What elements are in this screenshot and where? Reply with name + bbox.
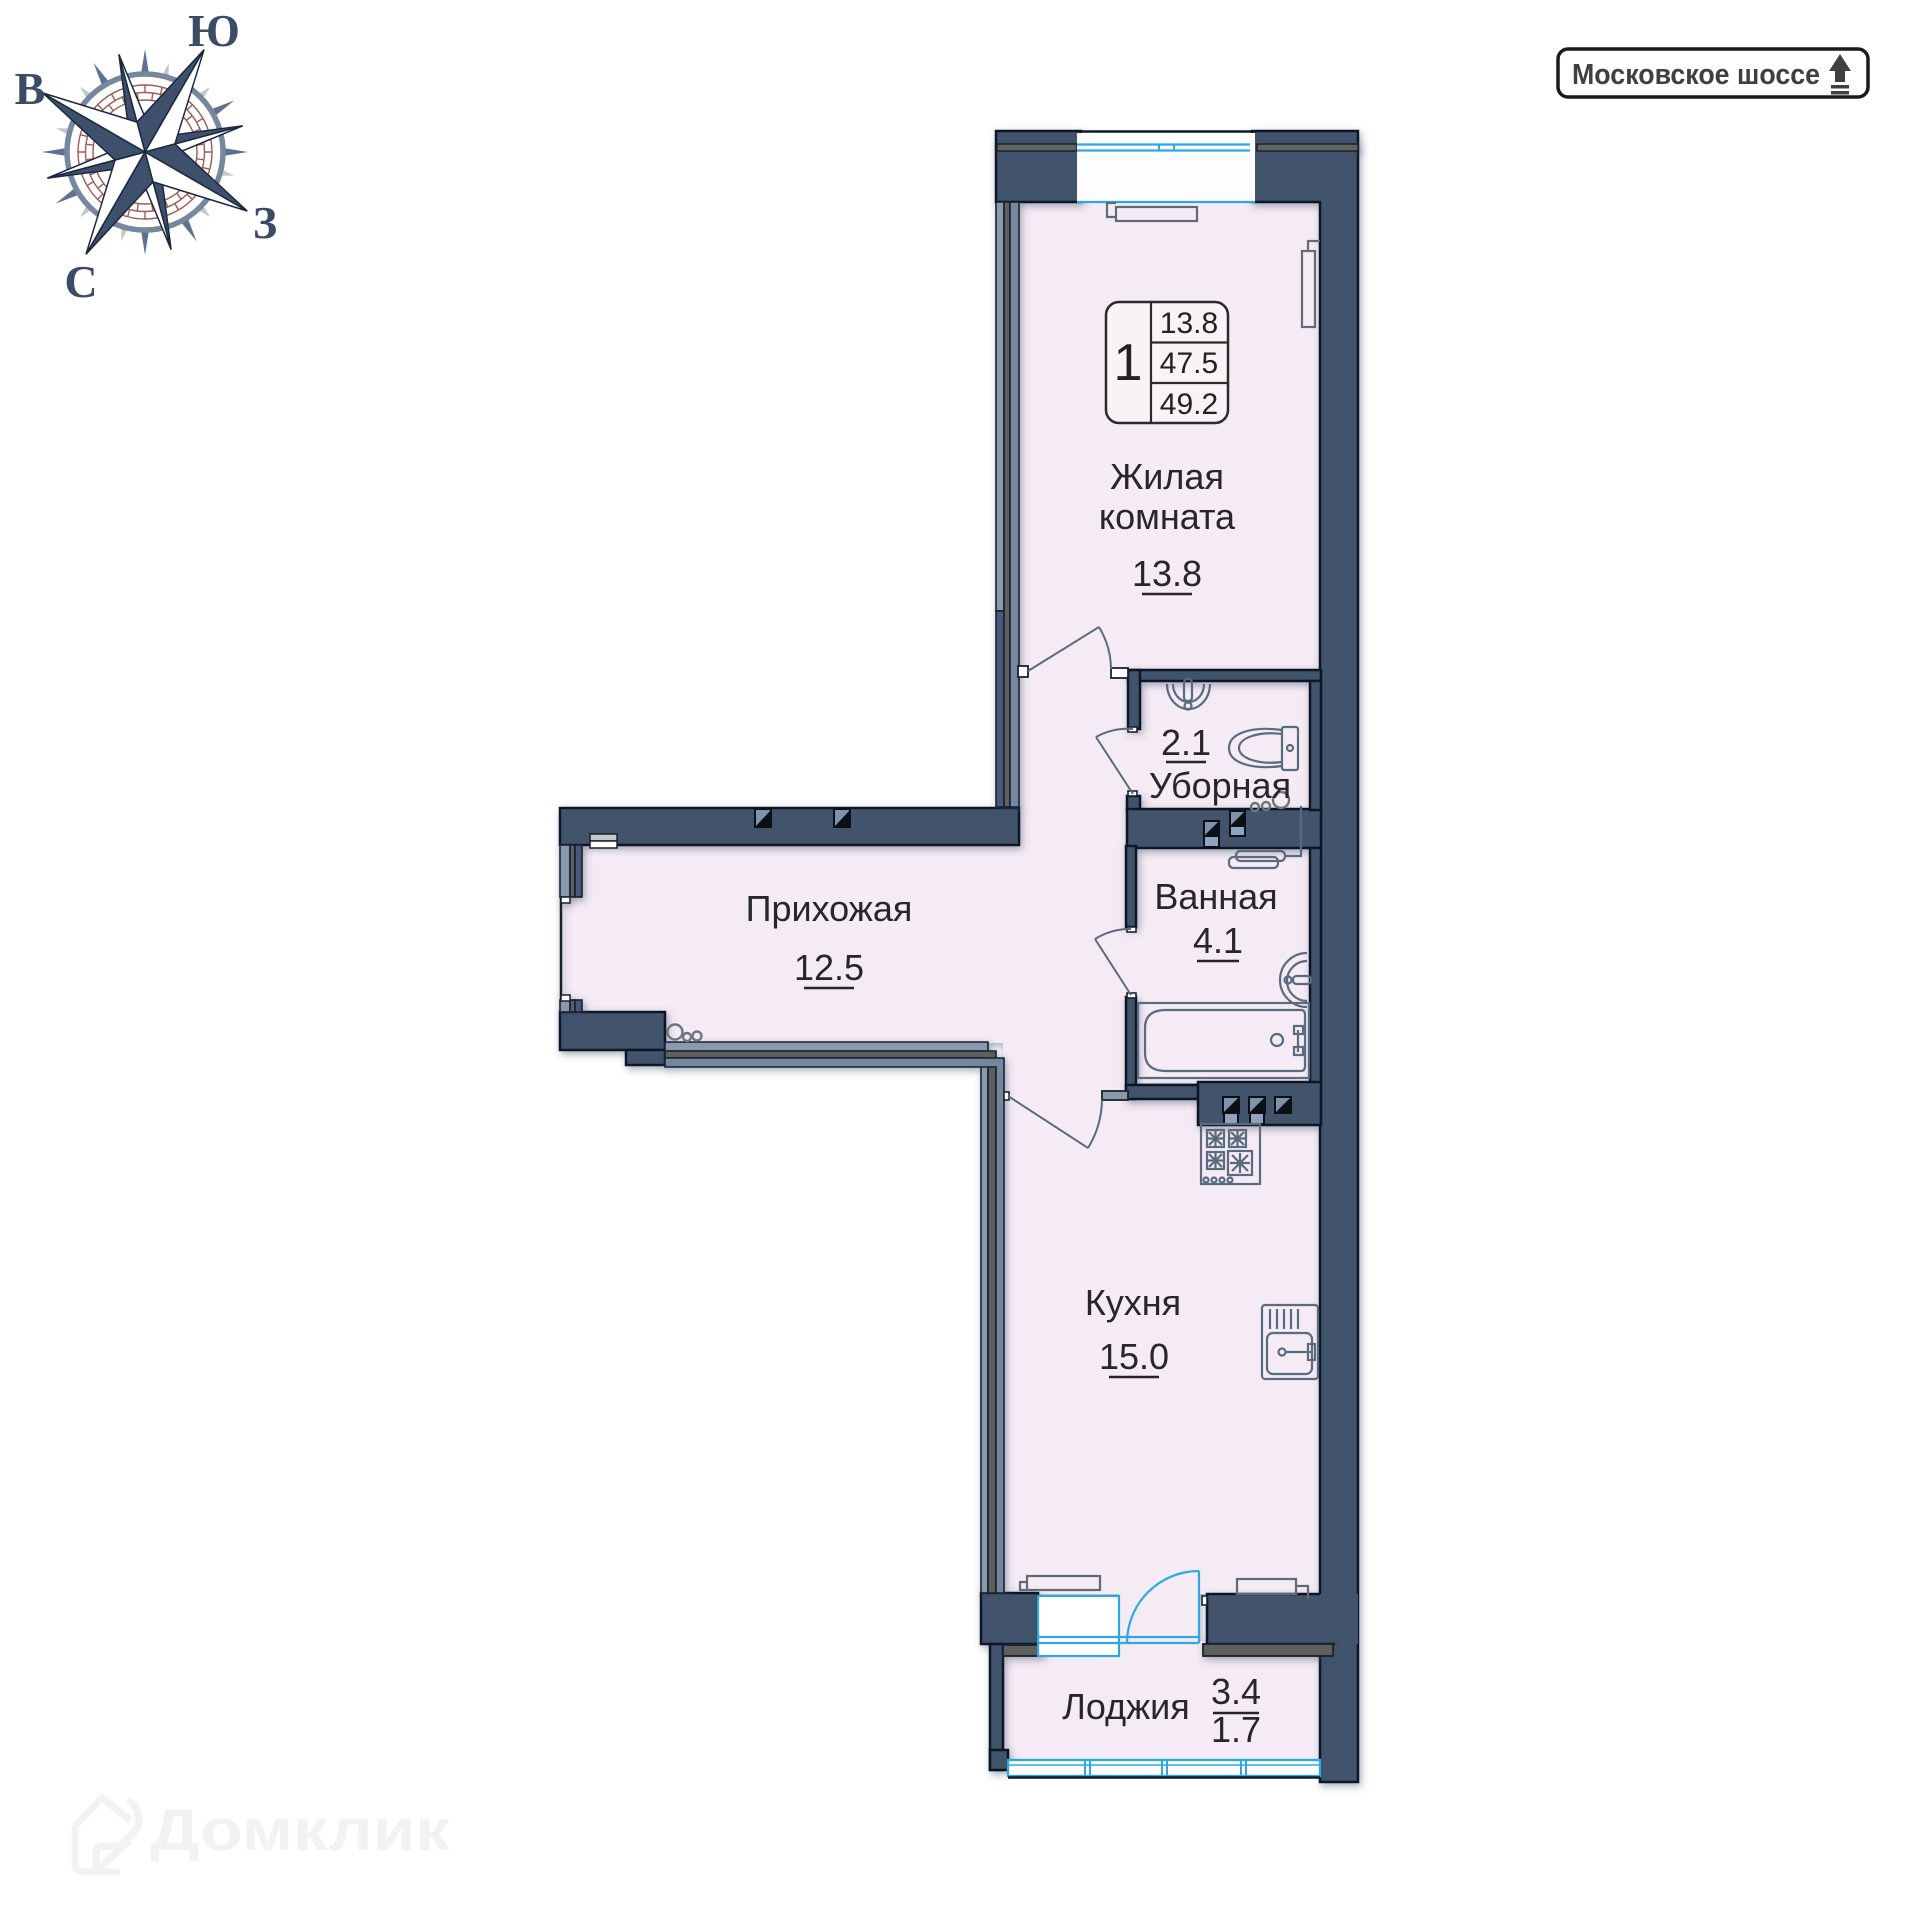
svg-text:1.7: 1.7 — [1211, 1709, 1261, 1750]
svg-text:Кухня: Кухня — [1085, 1282, 1181, 1323]
svg-text:13.8: 13.8 — [1160, 307, 1218, 340]
svg-text:47.5: 47.5 — [1160, 347, 1218, 380]
svg-text:Жилая: Жилая — [1110, 456, 1224, 497]
svg-text:12.5: 12.5 — [794, 947, 864, 988]
svg-text:Прихожая: Прихожая — [746, 888, 913, 929]
svg-text:Ю: Ю — [188, 5, 240, 56]
svg-text:13.8: 13.8 — [1132, 553, 1202, 594]
svg-text:Лоджия: Лоджия — [1062, 1686, 1190, 1727]
svg-text:Уборная: Уборная — [1149, 765, 1291, 806]
svg-text:С: С — [64, 256, 97, 307]
svg-text:Московское шоссе: Московское шоссе — [1572, 59, 1820, 91]
svg-text:4.1: 4.1 — [1193, 920, 1243, 961]
svg-text:З: З — [253, 197, 277, 248]
svg-text:Ванная: Ванная — [1154, 876, 1277, 917]
svg-text:2.1: 2.1 — [1161, 722, 1211, 763]
svg-text:49.2: 49.2 — [1160, 388, 1218, 421]
svg-text:3.4: 3.4 — [1211, 1671, 1261, 1712]
svg-text:Домклик: Домклик — [150, 1798, 451, 1863]
svg-text:1: 1 — [1114, 334, 1143, 392]
svg-text:15.0: 15.0 — [1099, 1336, 1169, 1377]
svg-text:В: В — [15, 63, 46, 114]
svg-text:комната: комната — [1099, 496, 1236, 537]
